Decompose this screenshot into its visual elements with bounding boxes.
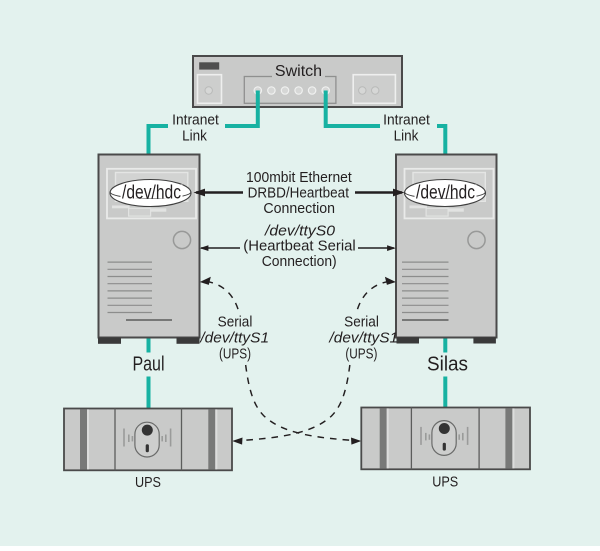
svg-text:(UPS): (UPS) — [219, 345, 251, 362]
svg-text:(UPS): (UPS) — [345, 345, 377, 362]
svg-text:Serial: Serial — [218, 313, 253, 330]
svg-text:Silas: Silas — [427, 354, 468, 376]
svg-text:Intranet: Intranet — [172, 112, 219, 129]
svg-text:UPS: UPS — [432, 475, 458, 491]
svg-text:Intranet: Intranet — [383, 112, 430, 129]
svg-text:Paul: Paul — [133, 354, 165, 376]
svg-text:/dev/ttyS1: /dev/ttyS1 — [328, 330, 398, 347]
svg-text:/dev/hdc: /dev/hdc — [416, 183, 475, 204]
svg-text:Connection: Connection — [263, 200, 335, 217]
svg-text:Serial: Serial — [344, 313, 379, 330]
svg-text:Link: Link — [394, 128, 419, 145]
svg-text:Switch: Switch — [275, 63, 322, 80]
svg-text:/dev/hdc: /dev/hdc — [122, 183, 181, 204]
svg-text:Connection): Connection) — [262, 253, 337, 270]
svg-text:100mbit Ethernet: 100mbit Ethernet — [246, 169, 352, 186]
svg-text:Link: Link — [182, 128, 207, 145]
svg-text:UPS: UPS — [135, 475, 161, 491]
svg-text:/dev/ttyS1: /dev/ttyS1 — [199, 330, 269, 347]
